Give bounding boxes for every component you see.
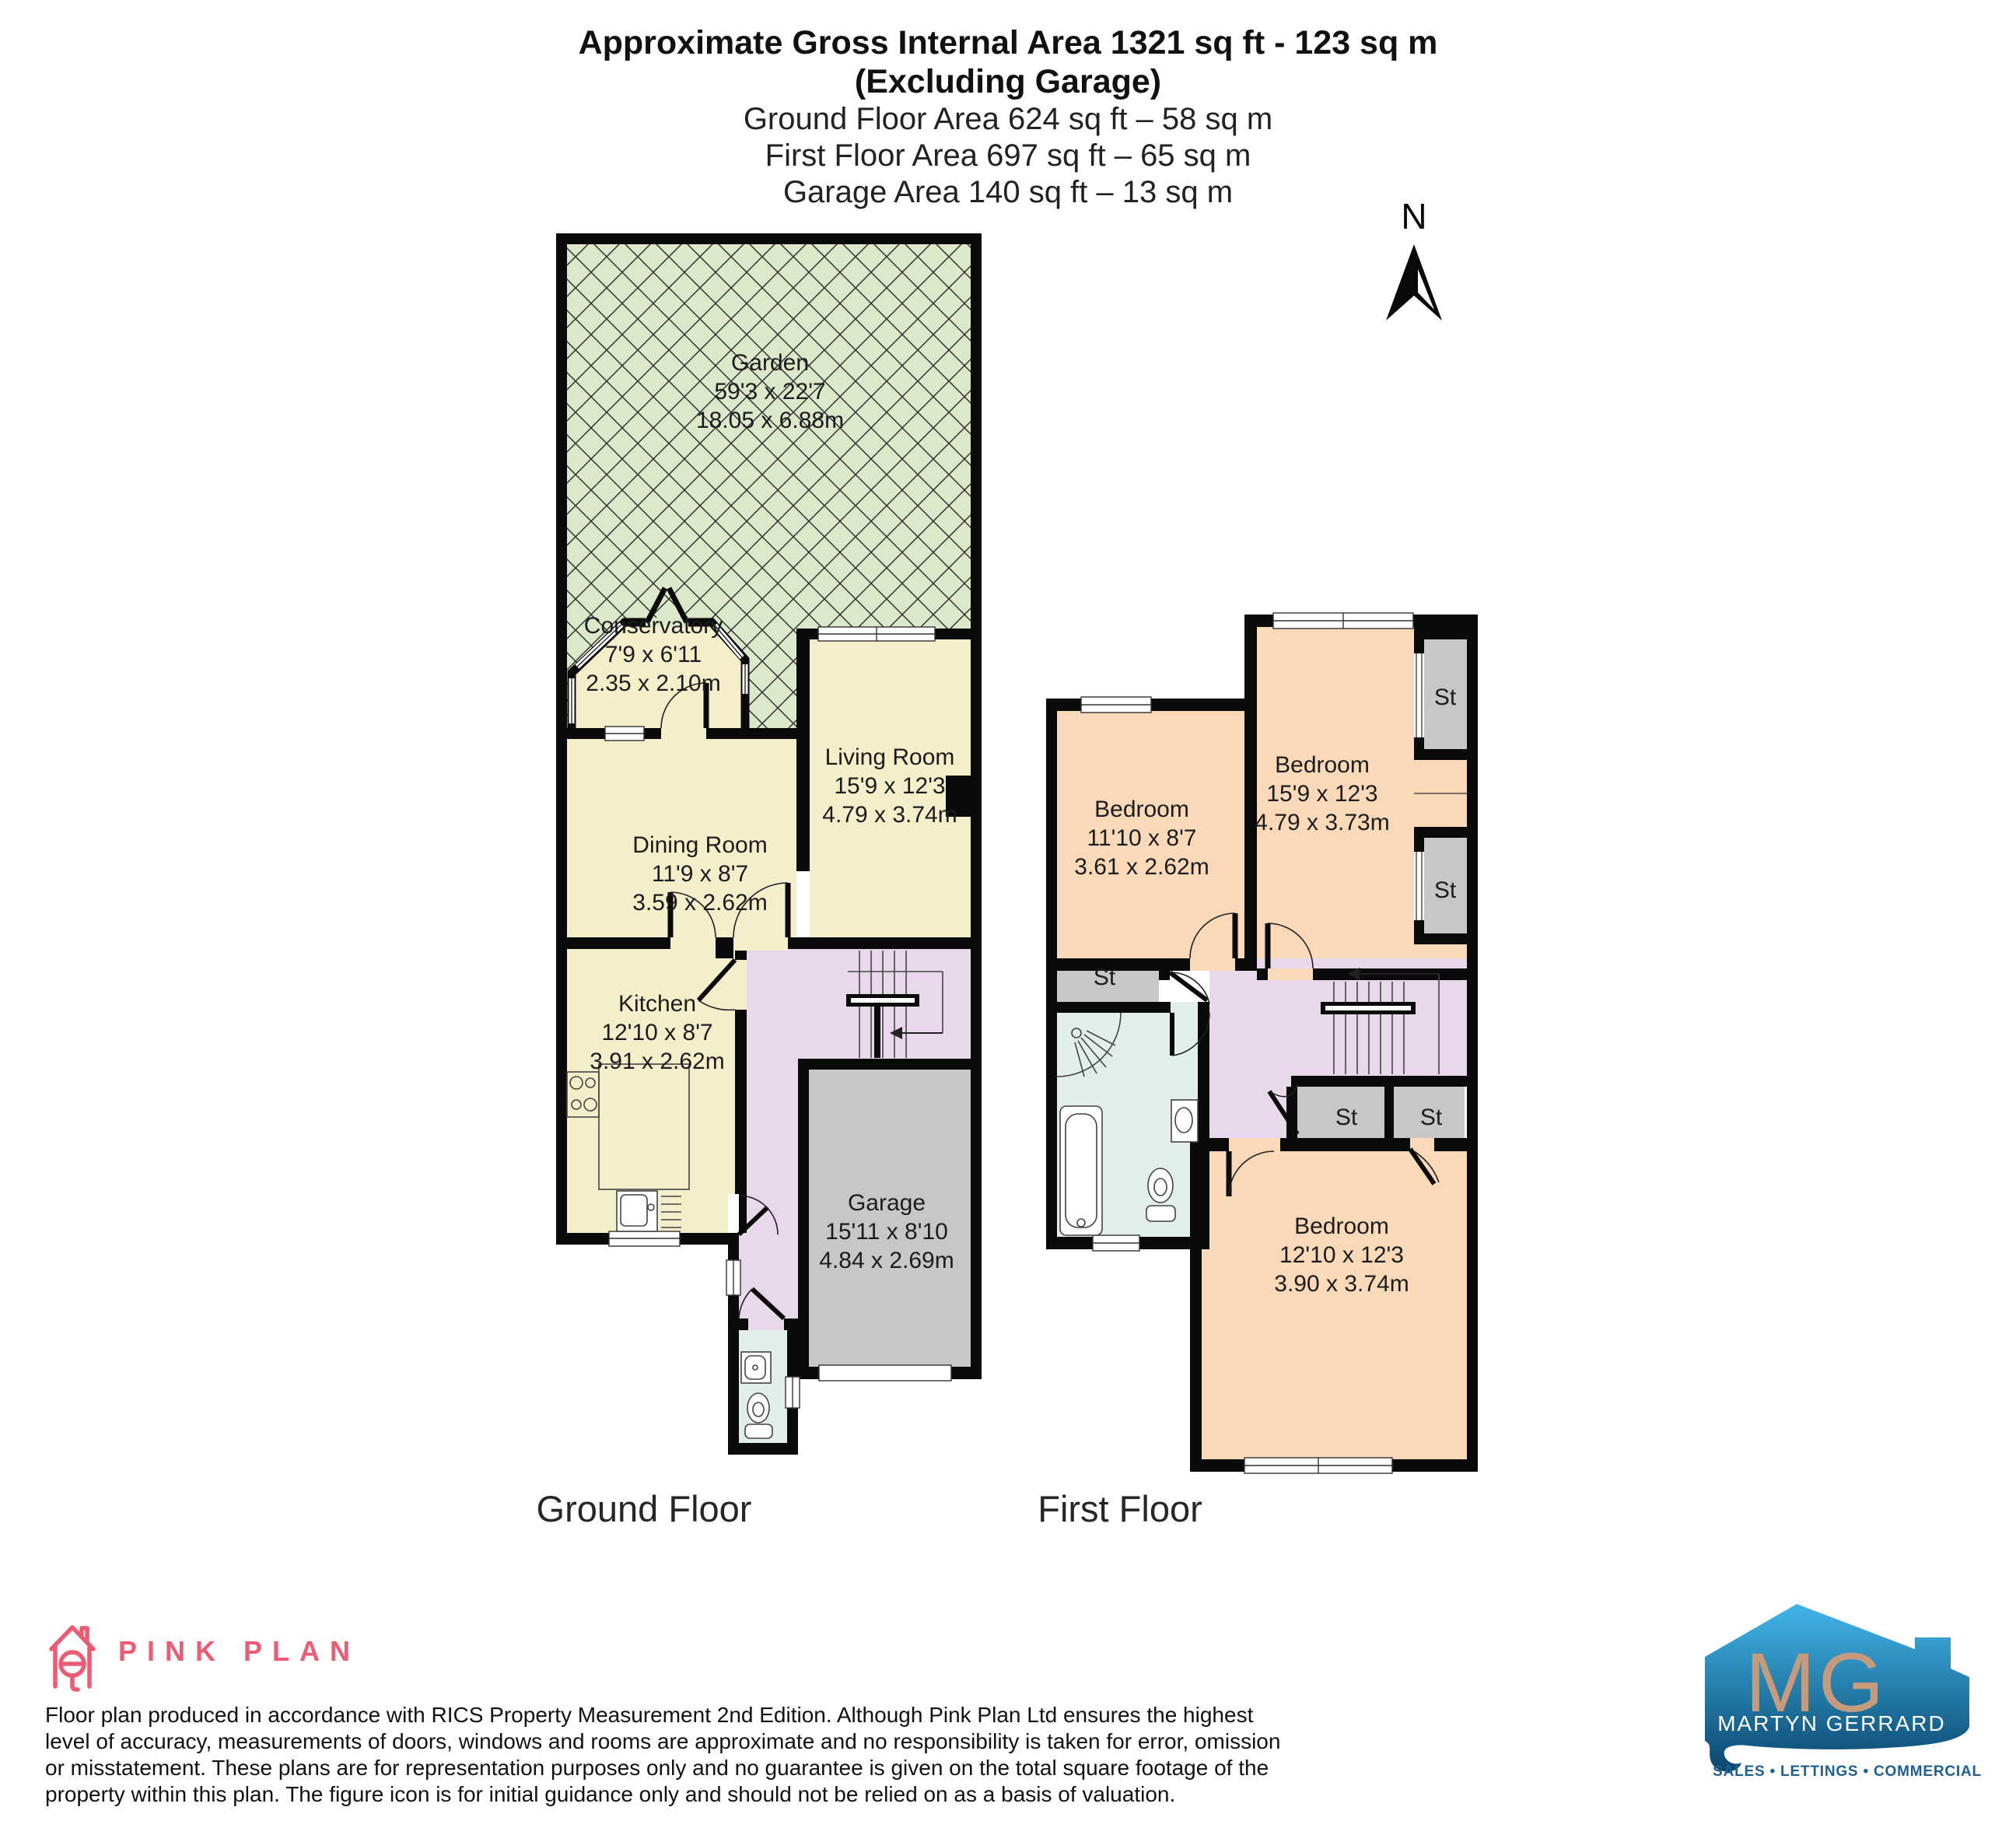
label-st-2: St (1420, 1105, 1442, 1131)
bathtub-icon (1060, 1106, 1102, 1235)
title-line-2: (Excluding Garage) (0, 62, 2016, 101)
label-kitchen: Kitchen 12'10 x 8'7 3.91 x 2.62m (590, 989, 724, 1076)
martyn-gerrard-logo: MG MARTYN GERRARD SALES • LETTINGS • COM… (1699, 1593, 1987, 1795)
wc-toilet-icon (747, 1393, 769, 1423)
title-line-1: Approximate Gross Internal Area 1321 sq … (0, 23, 2016, 62)
label-bedroom-left: Bedroom 11'10 x 8'7 3.61 x 2.62m (1074, 795, 1209, 881)
label-bedroom-bottom: Bedroom 12'10 x 12'3 3.90 x 3.74m (1274, 1212, 1409, 1298)
label-st-mid-right: St (1434, 877, 1456, 904)
mg-tagline: SALES • LETTINGS • COMMERCIAL (1713, 1763, 1982, 1780)
first-floor-label: First Floor (1038, 1487, 1202, 1530)
label-st-landing: St (1094, 965, 1115, 991)
mg-name: MARTYN GERRARD (1717, 1711, 1946, 1735)
north-compass-icon: N (1375, 188, 1453, 328)
room-bedroom-bottom (1202, 1151, 1467, 1459)
disclaimer-text: Floor plan produced in accordance with R… (45, 1702, 1280, 1808)
toilet-icon (1148, 1168, 1173, 1203)
title-line-3: Ground Floor Area 624 sq ft – 58 sq m (0, 101, 2016, 138)
title-line-4: First Floor Area 697 sq ft – 65 sq m (0, 138, 2016, 174)
label-garage: Garage 15'11 x 8'10 4.84 x 2.69m (819, 1189, 954, 1275)
north-arrow-icon (1386, 244, 1442, 320)
title-line-5: Garage Area 140 sq ft – 13 sq m (0, 174, 2016, 211)
label-dining-room: Dining Room 11'9 x 8'7 3.59 x 2.62m (632, 831, 767, 917)
first-floor-plan (1034, 607, 1486, 1486)
label-garden: Garden 59'3 x 22'7 18.05 x 6.88m (696, 348, 844, 435)
label-st-1: St (1335, 1105, 1357, 1131)
north-label: N (1401, 196, 1426, 236)
pink-plan-logo-icon (45, 1607, 100, 1694)
pink-plan-logo-text: PINK PLAN (118, 1635, 360, 1668)
label-bedroom-right: Bedroom 15'9 x 12'3 4.79 x 3.73m (1255, 751, 1389, 837)
ground-floor-label: Ground Floor (537, 1487, 752, 1530)
label-st-top-right: St (1434, 685, 1456, 711)
title-block: Approximate Gross Internal Area 1321 sq … (0, 23, 2016, 211)
label-living-room: Living Room 15'9 x 12'3 4.79 x 3.74m (822, 743, 957, 829)
label-conservatory: Conservatory 7'9 x 6'11 2.35 x 2.10m (584, 611, 723, 698)
garage-door (819, 1365, 951, 1381)
